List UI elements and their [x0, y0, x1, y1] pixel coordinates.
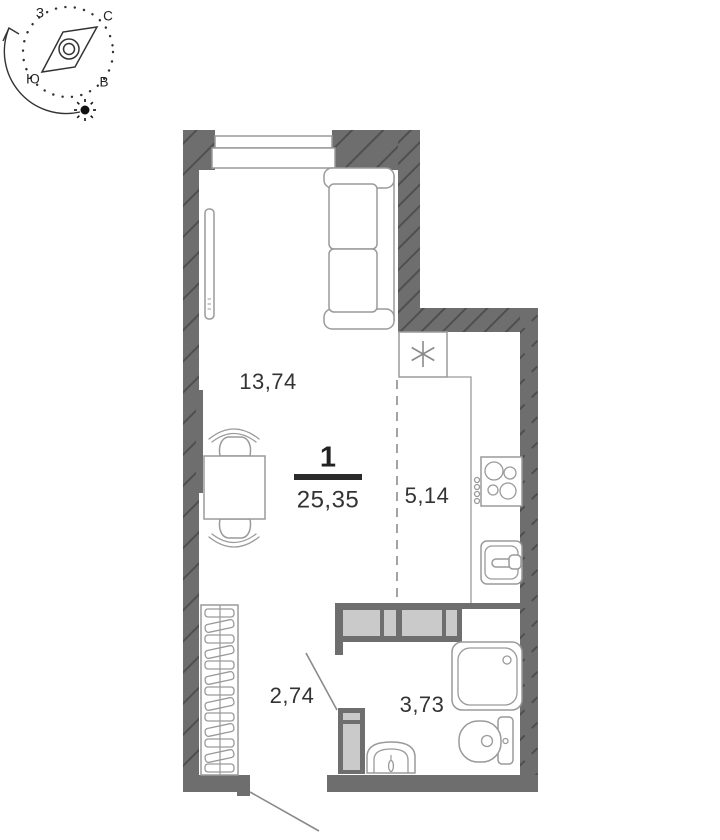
tv-screen [205, 209, 214, 319]
compass-west-label: З [36, 6, 44, 21]
kitchen-fixtures [399, 332, 522, 603]
dining-set [204, 429, 265, 547]
bathroom-fixtures [367, 642, 522, 773]
bathroom-duct-panel [343, 724, 360, 770]
window [212, 136, 335, 168]
compass-east-label: В [99, 75, 108, 90]
window-inner-sill [212, 148, 335, 168]
sofa-cushion [329, 184, 377, 249]
cooktop [475, 457, 523, 506]
entrance-door-leaf [250, 792, 319, 831]
shower-tray [452, 642, 522, 710]
floor-plan-svg: З С Ю В [0, 0, 720, 840]
compass-needle-icon [42, 27, 97, 72]
left-wall-pilaster [196, 390, 203, 493]
window-outer-sill [215, 136, 332, 148]
plumbing-wall-panel [343, 610, 380, 636]
plumbing-wall-stub [335, 603, 343, 655]
right-wall-upper [398, 130, 420, 310]
plumbing-wall-panel [402, 610, 442, 636]
living-room-area-label: 13,74 [239, 369, 297, 394]
compass-south-label: Ю [26, 72, 40, 87]
kitchen-sink [481, 541, 522, 584]
plumbing-wall-panel [384, 610, 396, 636]
bathroom-area-label: 3,73 [400, 692, 445, 717]
chair-top [209, 429, 259, 456]
chair-bottom [209, 519, 259, 547]
kitchen-counter-edge [447, 377, 471, 603]
rooms-count-label: 1 [320, 442, 336, 474]
bathroom-duct-panel-top [343, 713, 360, 720]
toilet-bowl [459, 721, 501, 762]
cooktop-knobs [475, 478, 480, 504]
hallway-area-label: 2,74 [270, 683, 315, 708]
compass-north-label: С [103, 9, 113, 24]
compass: З С Ю В [3, 6, 113, 121]
toilet [459, 717, 513, 764]
top-wall-left-block [183, 130, 215, 170]
sofa [324, 168, 394, 329]
step-wall [398, 308, 538, 332]
wardrobe [201, 605, 238, 775]
apartment-summary: 1 25,35 [294, 442, 362, 514]
wash-basin [367, 742, 415, 773]
sun-icon [74, 99, 96, 121]
bottom-wall-right [327, 775, 538, 792]
bottom-wall-left-step [237, 775, 250, 796]
dining-table [204, 456, 265, 519]
summary-divider [294, 474, 362, 480]
tv [205, 209, 214, 319]
total-area-label: 25,35 [297, 486, 360, 513]
kitchen-area-label: 5,14 [405, 483, 450, 508]
sofa-cushion [329, 249, 377, 312]
plumbing-wall-panel [446, 610, 457, 636]
floor-plan-page: З С Ю В [0, 0, 720, 840]
